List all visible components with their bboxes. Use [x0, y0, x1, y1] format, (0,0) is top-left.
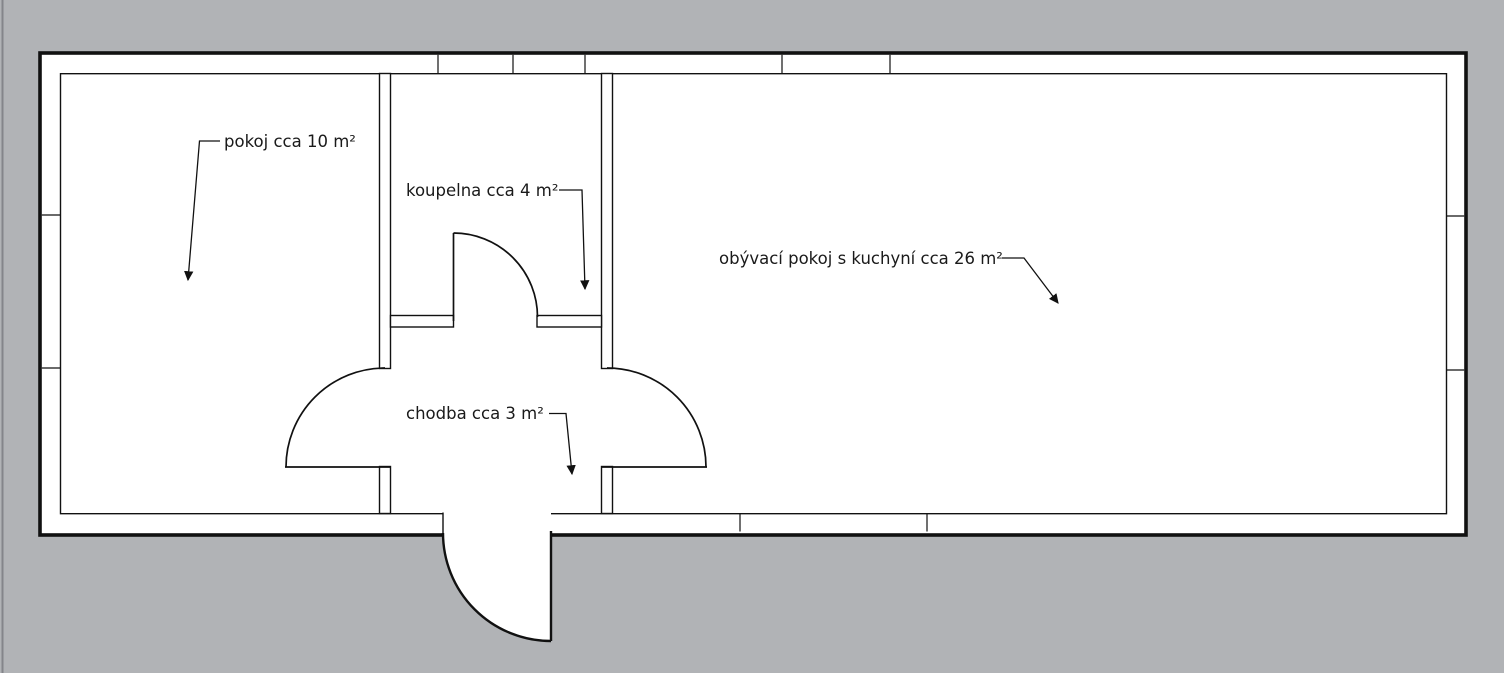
wall-koupelna-south-right [537, 316, 602, 328]
wall-pokoj-lower [380, 467, 391, 514]
wall-koupelna-south-left [391, 316, 454, 328]
wall-pokoj-upper [380, 74, 391, 369]
exterior-wall-outer [40, 53, 1466, 535]
wall-obyvaci-lower [602, 467, 613, 514]
entrance-opening [445, 511, 550, 536]
floor-plan-svg: pokoj cca 10 m² koupelna cca 4 m² obývac… [0, 0, 1504, 673]
label-koupelna: koupelna cca 4 m² [406, 181, 558, 200]
wall-obyvaci-upper [602, 74, 613, 369]
label-obyvaci-pokoj: obývací pokoj s kuchyní cca 26 m² [719, 249, 1003, 268]
label-chodba: chodba cca 3 m² [406, 404, 544, 423]
label-pokoj: pokoj cca 10 m² [224, 132, 356, 151]
